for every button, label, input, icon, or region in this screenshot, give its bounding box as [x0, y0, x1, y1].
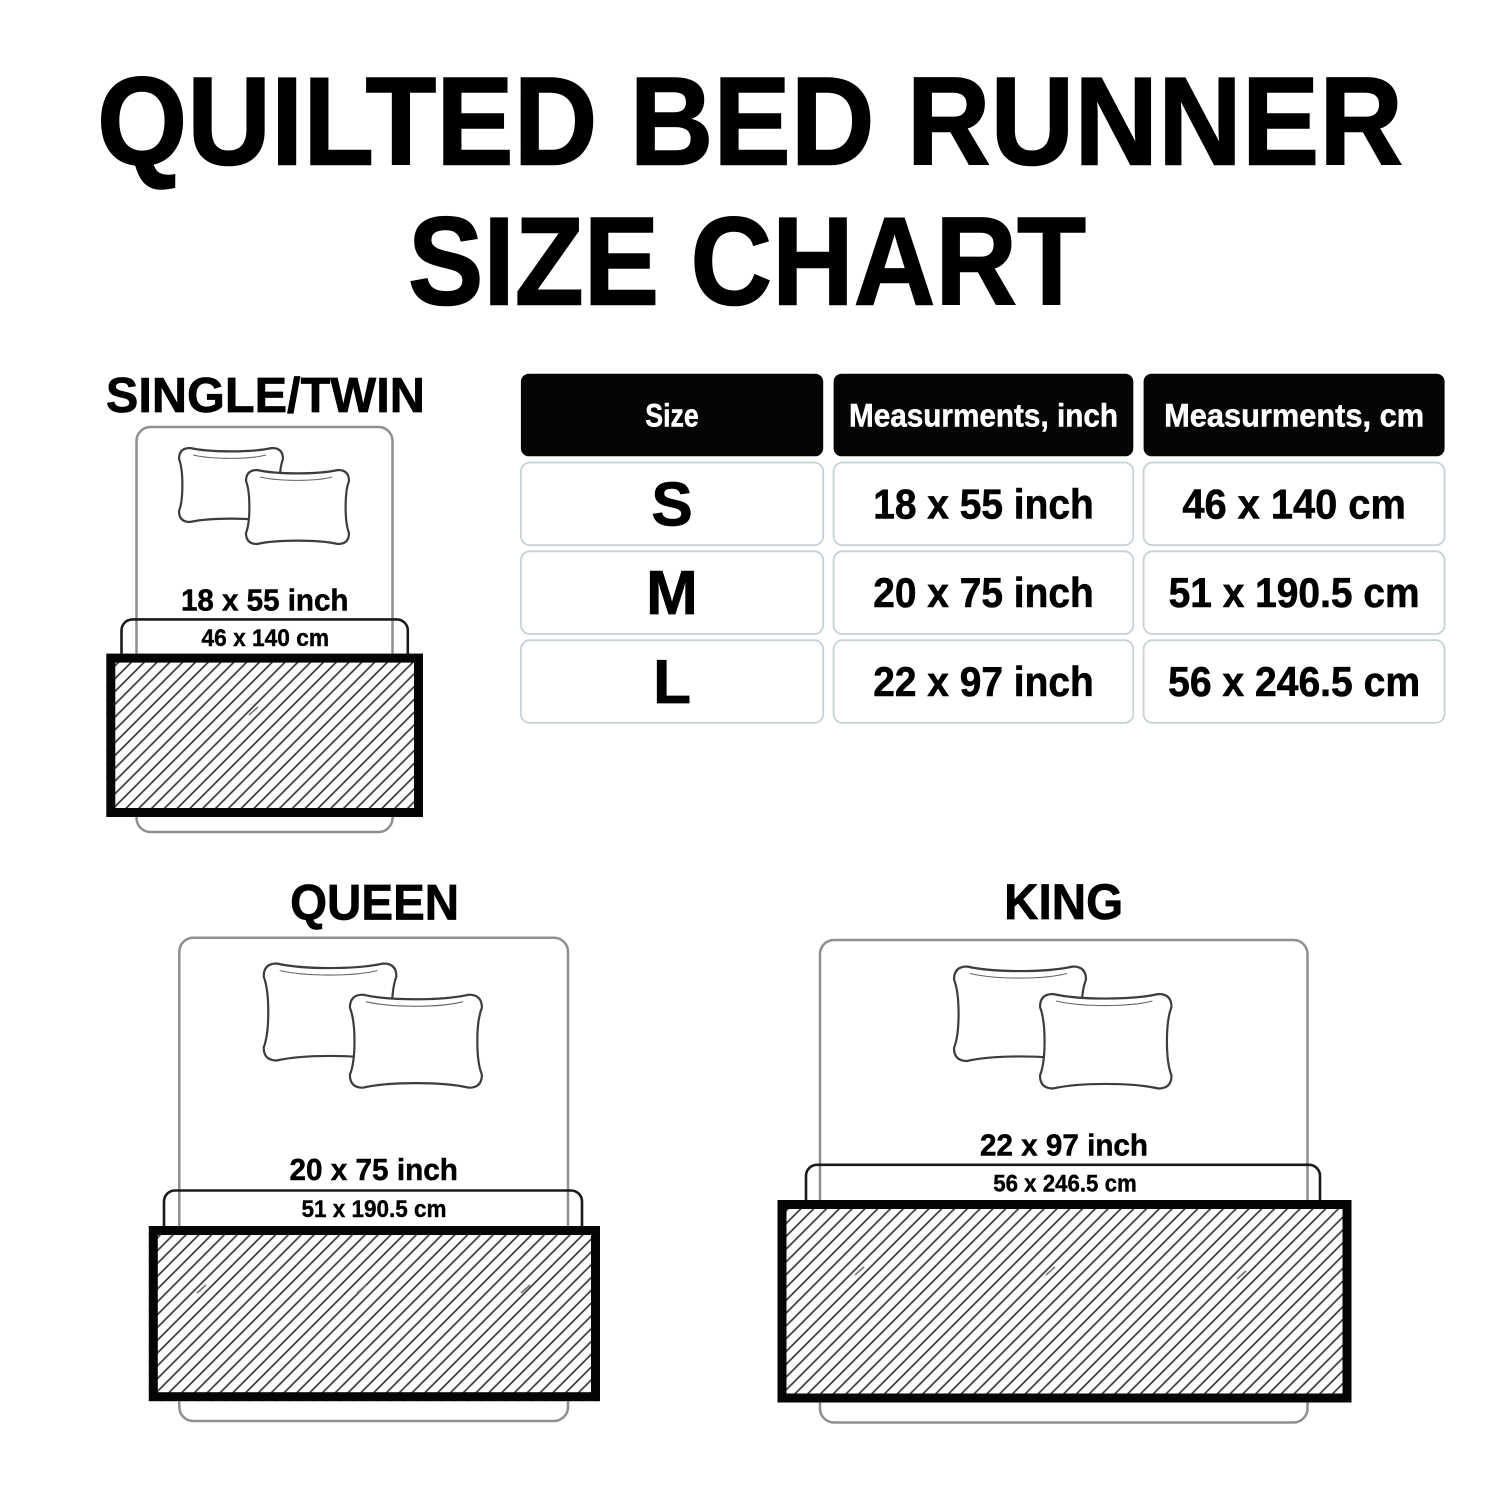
- svg-text:SIZE CHART: SIZE CHART: [408, 193, 1086, 332]
- svg-text:Measurments, inch: Measurments, inch: [849, 397, 1118, 433]
- svg-text:18 x 55 inch: 18 x 55 inch: [873, 480, 1094, 527]
- svg-text:S: S: [651, 470, 692, 539]
- svg-text:SINGLE/TWIN: SINGLE/TWIN: [106, 368, 425, 423]
- svg-text:M: M: [646, 559, 698, 628]
- svg-text:56 x 246.5 cm: 56 x 246.5 cm: [1168, 658, 1420, 705]
- svg-text:18 x 55 inch: 18 x 55 inch: [181, 583, 349, 618]
- svg-text:20 x 75 inch: 20 x 75 inch: [873, 569, 1094, 616]
- svg-text:KING: KING: [1004, 873, 1123, 930]
- svg-text:22 x 97 inch: 22 x 97 inch: [980, 1127, 1148, 1162]
- svg-text:51 x 190.5 cm: 51 x 190.5 cm: [302, 1196, 447, 1223]
- svg-text:Size: Size: [645, 397, 699, 433]
- svg-text:22 x 97 inch: 22 x 97 inch: [873, 658, 1094, 705]
- svg-text:L: L: [653, 648, 691, 717]
- svg-text:Measurments, cm: Measurments, cm: [1164, 397, 1424, 433]
- svg-text:46 x 140 cm: 46 x 140 cm: [202, 625, 330, 652]
- svg-text:56 x 246.5 cm: 56 x 246.5 cm: [993, 1170, 1137, 1197]
- svg-text:20 x 75 inch: 20 x 75 inch: [289, 1152, 458, 1187]
- svg-text:51 x 190.5 cm: 51 x 190.5 cm: [1169, 569, 1420, 616]
- svg-text:QUILTED BED RUNNER: QUILTED BED RUNNER: [97, 53, 1403, 192]
- svg-text:46 x 140 cm: 46 x 140 cm: [1182, 480, 1406, 527]
- svg-text:QUEEN: QUEEN: [290, 874, 459, 931]
